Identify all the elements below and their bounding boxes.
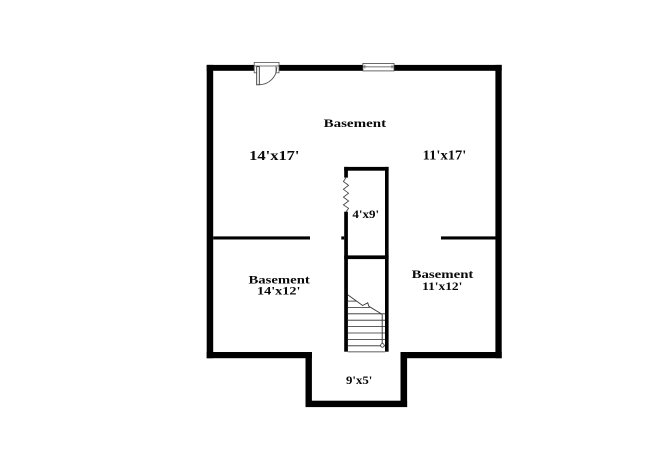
svg-text:Basement: Basement [324,116,387,130]
svg-text:14'x17': 14'x17' [249,148,299,163]
svg-text:11'x12': 11'x12' [422,280,462,293]
svg-text:Basement: Basement [412,268,474,281]
svg-text:9'x5': 9'x5' [346,375,372,387]
svg-text:11'x17': 11'x17' [423,148,467,163]
svg-text:14'x12': 14'x12' [257,285,301,298]
svg-text:4'x9': 4'x9' [352,208,379,221]
